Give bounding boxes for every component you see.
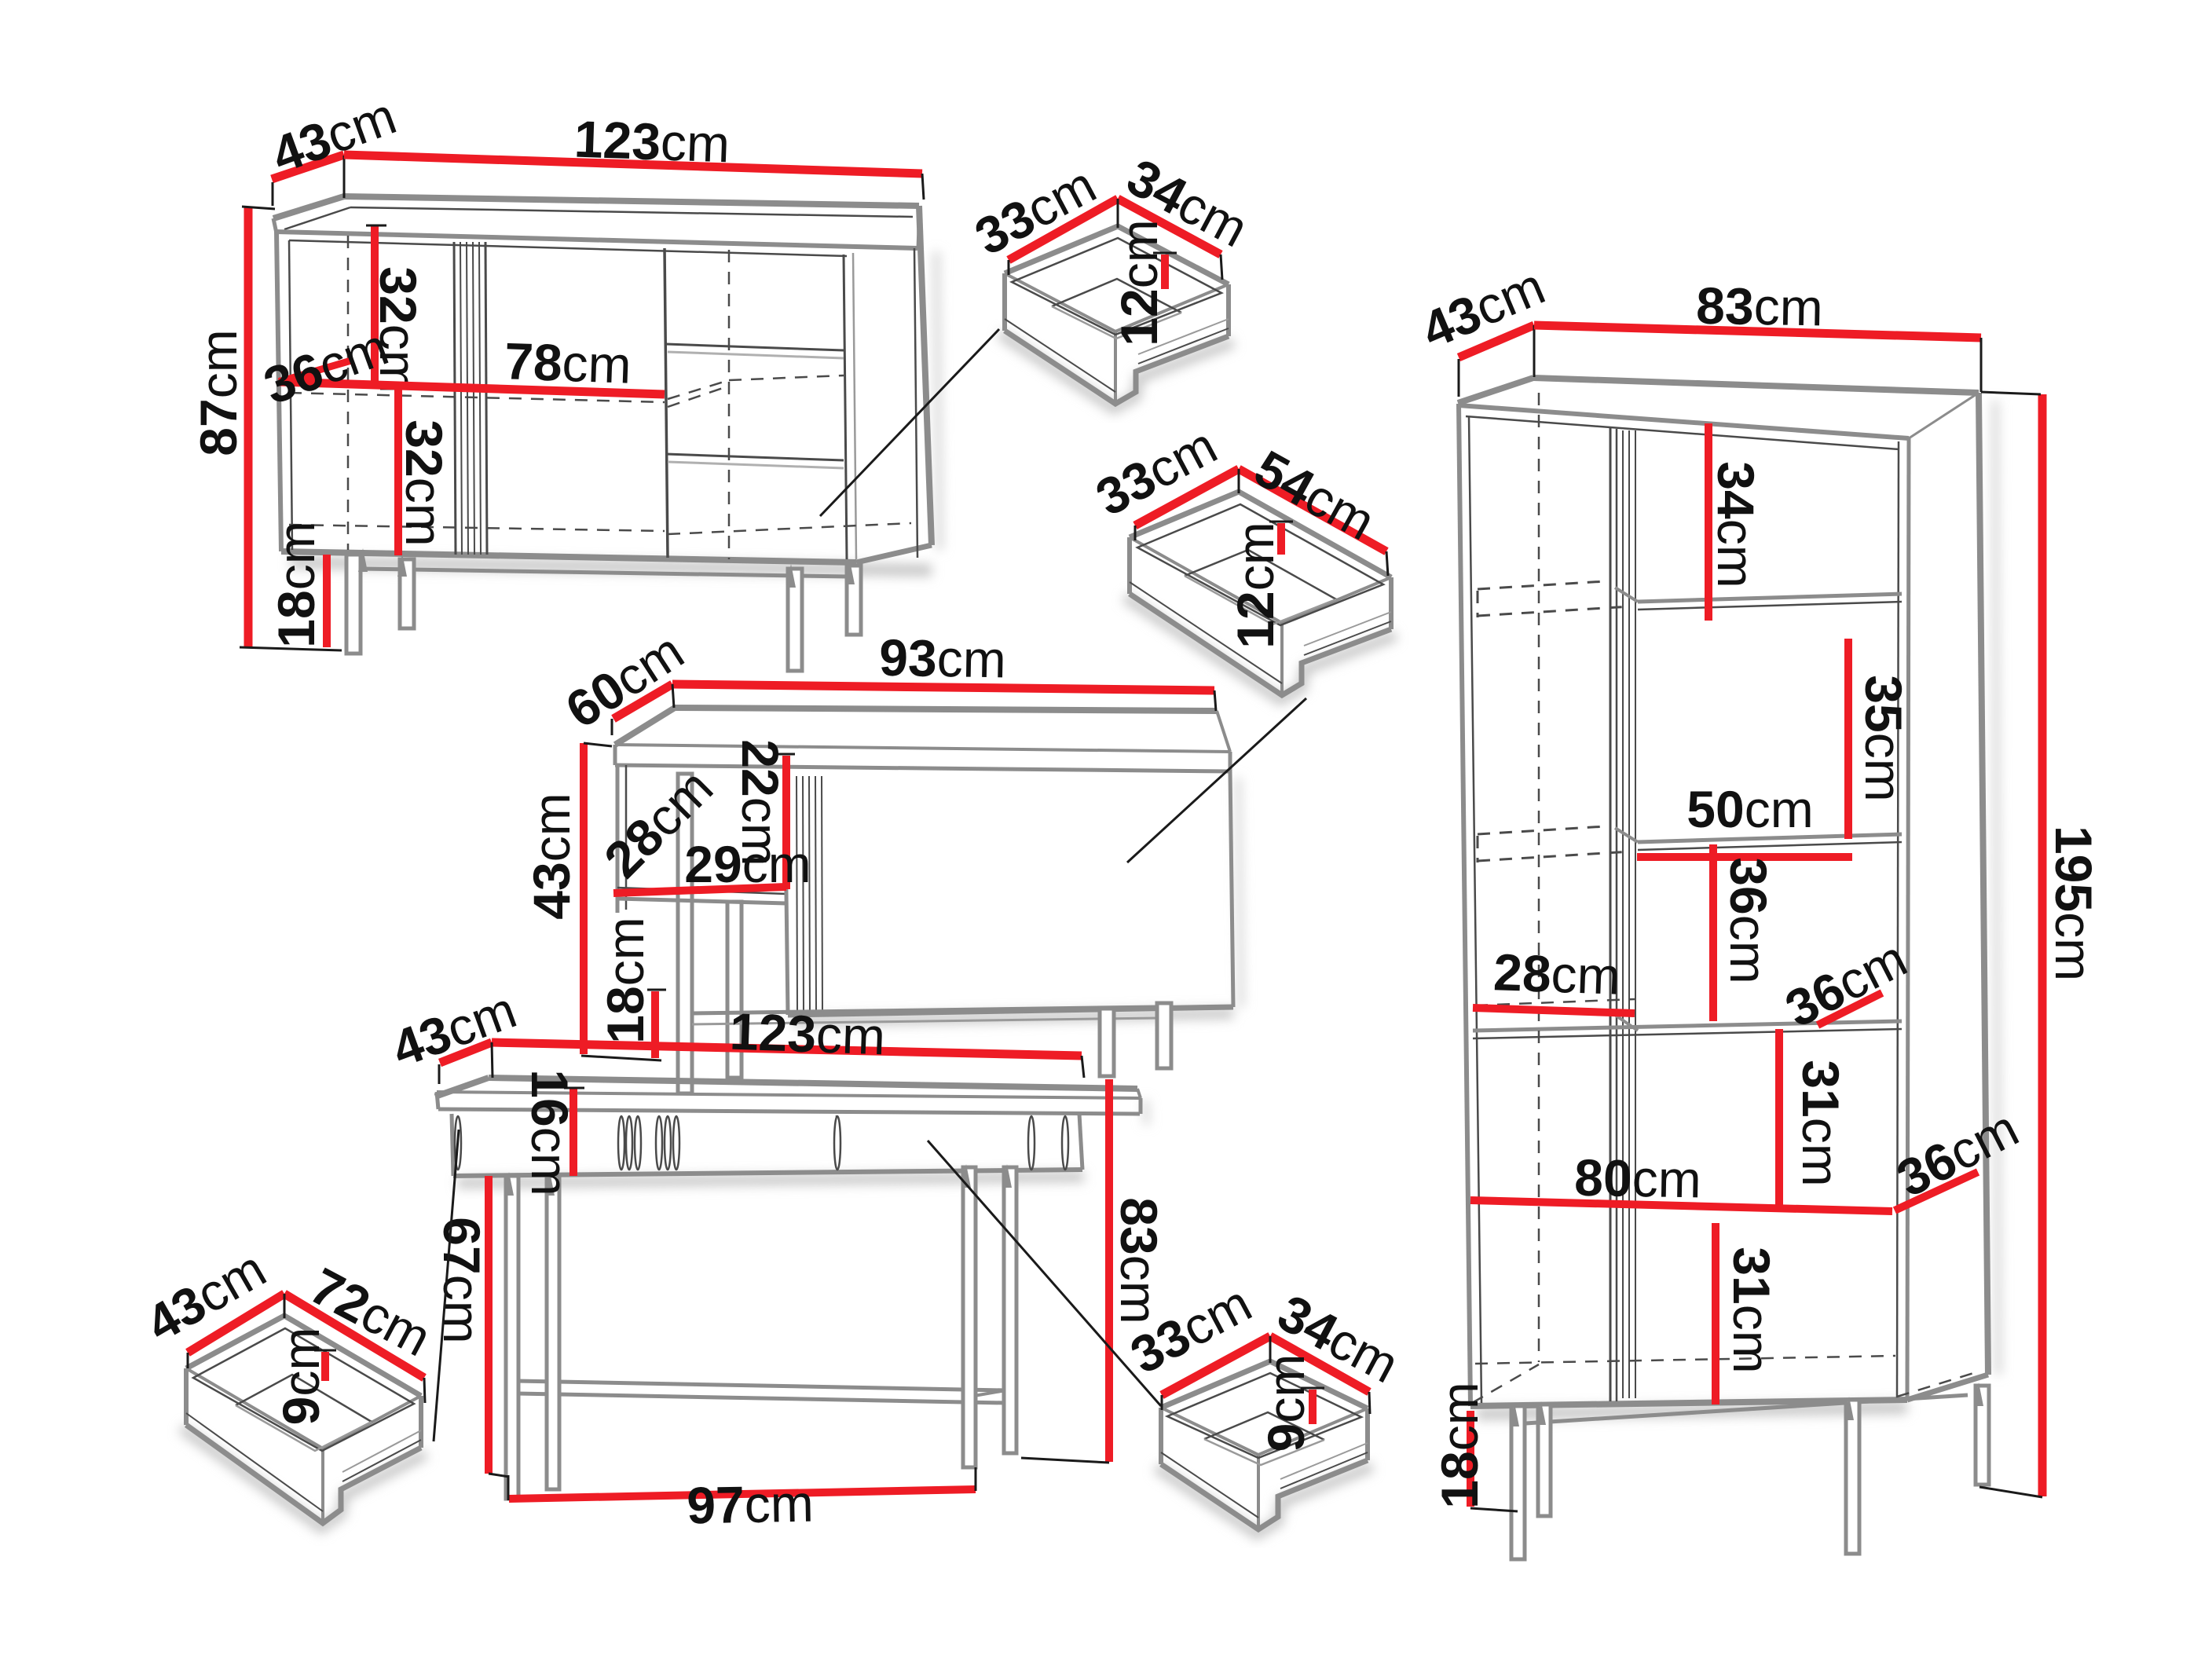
svg-text:31cm: 31cm [1792, 1060, 1850, 1186]
svg-text:18cm: 18cm [1430, 1382, 1489, 1508]
svg-text:18cm: 18cm [596, 917, 654, 1043]
svg-text:97cm: 97cm [687, 1474, 815, 1535]
svg-text:78cm: 78cm [504, 331, 632, 394]
svg-text:12cm: 12cm [1226, 522, 1284, 648]
svg-text:29cm: 29cm [684, 835, 811, 893]
svg-text:50cm: 50cm [1686, 780, 1813, 838]
svg-text:195cm: 195cm [2045, 826, 2103, 981]
svg-text:32cm: 32cm [395, 419, 453, 546]
svg-text:80cm: 80cm [1574, 1148, 1702, 1209]
svg-text:12cm: 12cm [1110, 219, 1168, 346]
svg-text:123cm: 123cm [729, 1002, 887, 1066]
svg-text:87cm: 87cm [189, 329, 247, 456]
svg-text:16cm: 16cm [521, 1069, 579, 1196]
svg-text:93cm: 93cm [879, 628, 1007, 689]
svg-text:9cm: 9cm [272, 1328, 330, 1426]
svg-text:9cm: 9cm [1257, 1354, 1315, 1452]
svg-text:34cm: 34cm [1707, 461, 1765, 588]
svg-text:35cm: 35cm [1855, 675, 1913, 801]
svg-text:18cm: 18cm [267, 521, 325, 647]
svg-text:36cm: 36cm [1719, 857, 1778, 983]
svg-text:67cm: 67cm [433, 1217, 491, 1343]
svg-text:31cm: 31cm [1723, 1247, 1781, 1373]
svg-text:83cm: 83cm [1110, 1197, 1168, 1324]
svg-text:28cm: 28cm [1492, 943, 1621, 1005]
svg-text:83cm: 83cm [1696, 276, 1824, 337]
svg-text:43cm: 43cm [522, 793, 580, 919]
svg-text:123cm: 123cm [573, 110, 731, 174]
